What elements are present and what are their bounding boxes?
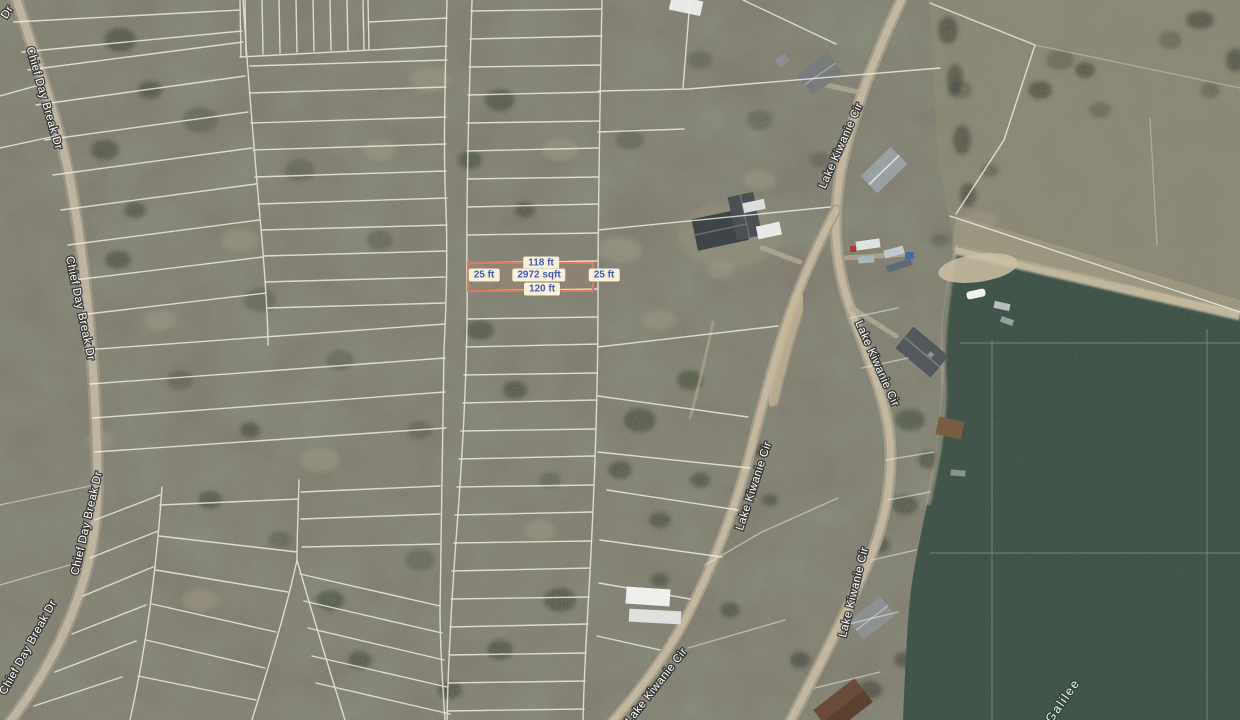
lake <box>903 246 1240 720</box>
mobile-home <box>629 609 682 625</box>
measurement-area: 2972 sqft <box>512 269 565 282</box>
measurement-width-bottom: 120 ft <box>524 283 560 296</box>
measurement-side-right: 25 ft <box>589 269 620 282</box>
satellite-imagery: Dr Chief Day Break Dr Chief Day Break Dr… <box>0 0 1240 720</box>
measurement-side-left: 25 ft <box>469 269 500 282</box>
map-canvas[interactable]: Dr Chief Day Break Dr Chief Day Break Dr… <box>0 0 1240 720</box>
